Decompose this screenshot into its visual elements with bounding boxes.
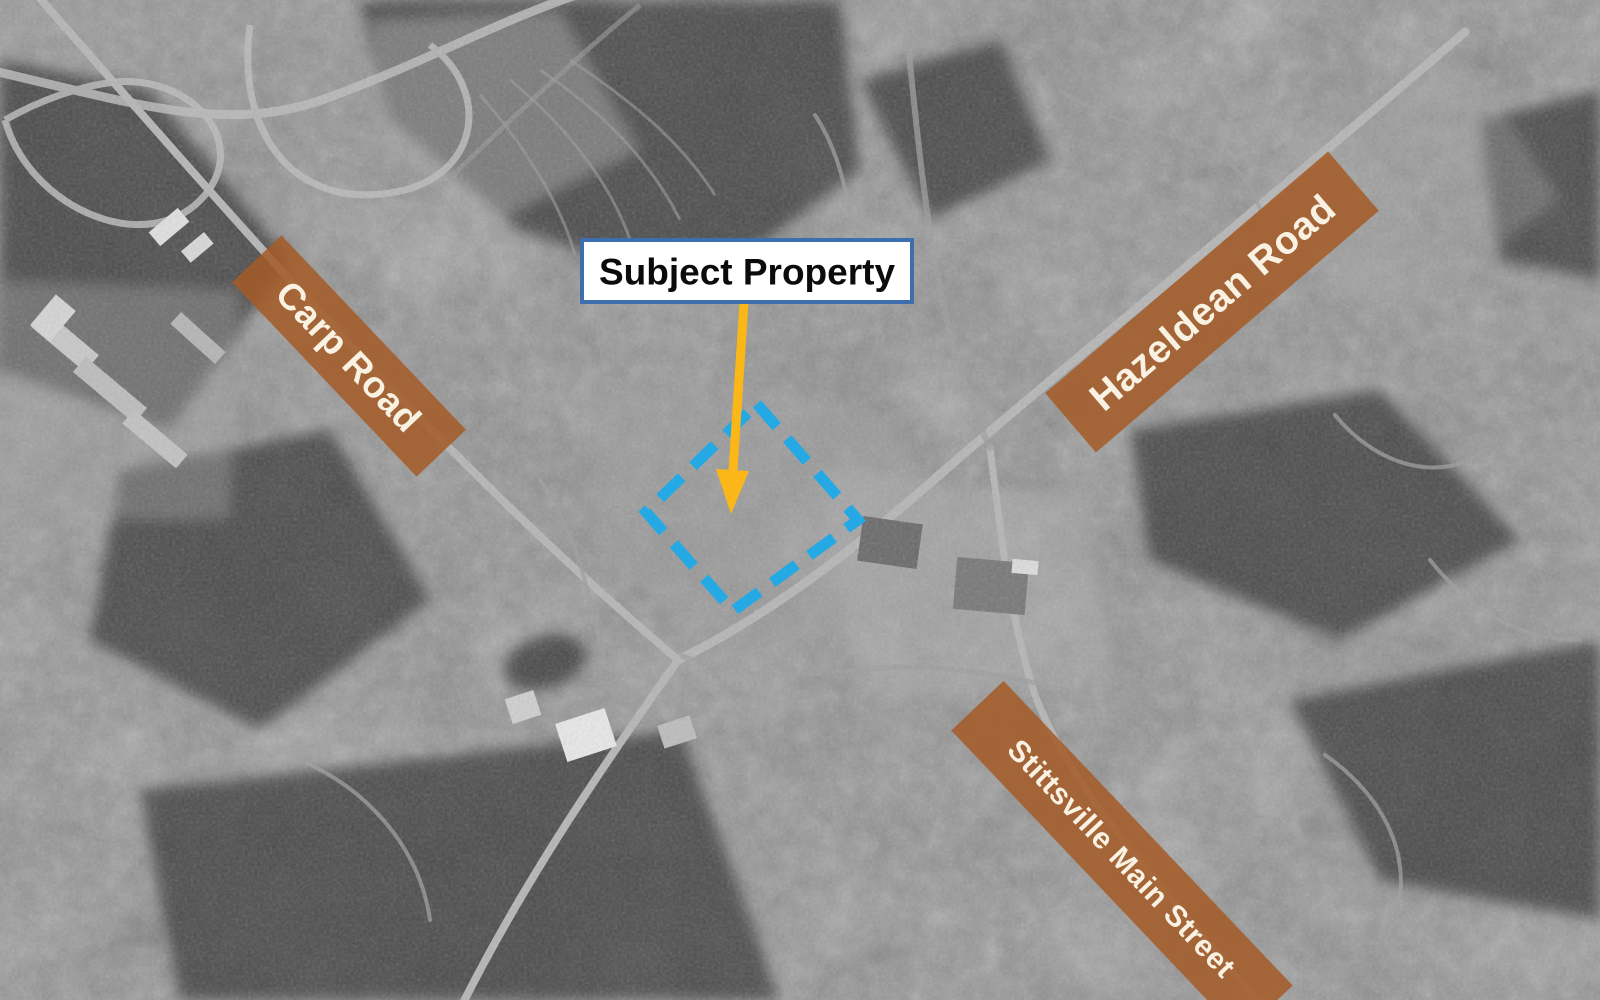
callout-subject-property: Subject Property xyxy=(582,240,912,302)
map-canvas: Carp Road Hazeldean Road Stittsville Mai… xyxy=(0,0,1600,1000)
callout-label: Subject Property xyxy=(599,251,895,292)
photo-grain xyxy=(0,0,1600,1000)
satellite-imagery xyxy=(0,0,1600,1000)
aerial-map: Carp Road Hazeldean Road Stittsville Mai… xyxy=(0,0,1600,1000)
